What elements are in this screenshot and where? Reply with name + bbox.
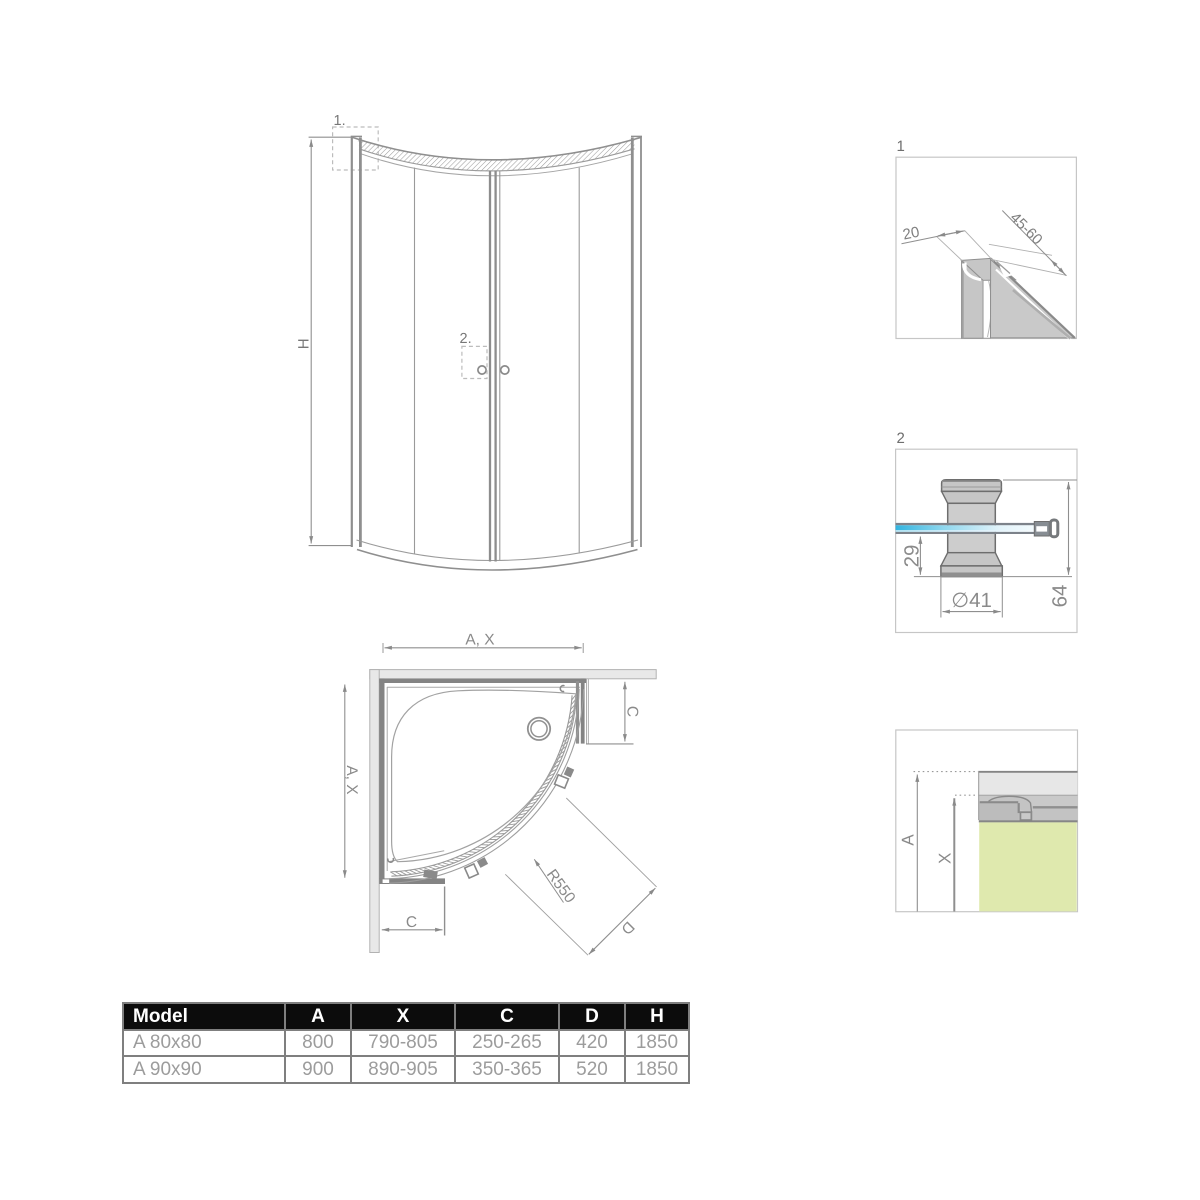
- svg-text:A, X: A, X: [465, 632, 495, 649]
- svg-text:2: 2: [897, 430, 905, 447]
- svg-text:A, X: A, X: [343, 765, 360, 795]
- svg-text:2.: 2.: [460, 331, 472, 347]
- svg-text:45-60: 45-60: [1007, 209, 1046, 248]
- svg-text:D: D: [618, 918, 638, 938]
- svg-text:A: A: [898, 834, 917, 846]
- svg-text:64: 64: [1049, 585, 1072, 608]
- svg-text:H: H: [295, 338, 312, 349]
- svg-text:R550: R550: [543, 866, 579, 906]
- svg-text:C: C: [624, 706, 641, 717]
- svg-text:1: 1: [897, 138, 905, 155]
- svg-text:∅41: ∅41: [951, 589, 992, 612]
- svg-text:C: C: [406, 914, 417, 931]
- svg-text:29: 29: [901, 545, 924, 568]
- svg-text:20: 20: [901, 224, 921, 244]
- svg-text:X: X: [935, 853, 954, 864]
